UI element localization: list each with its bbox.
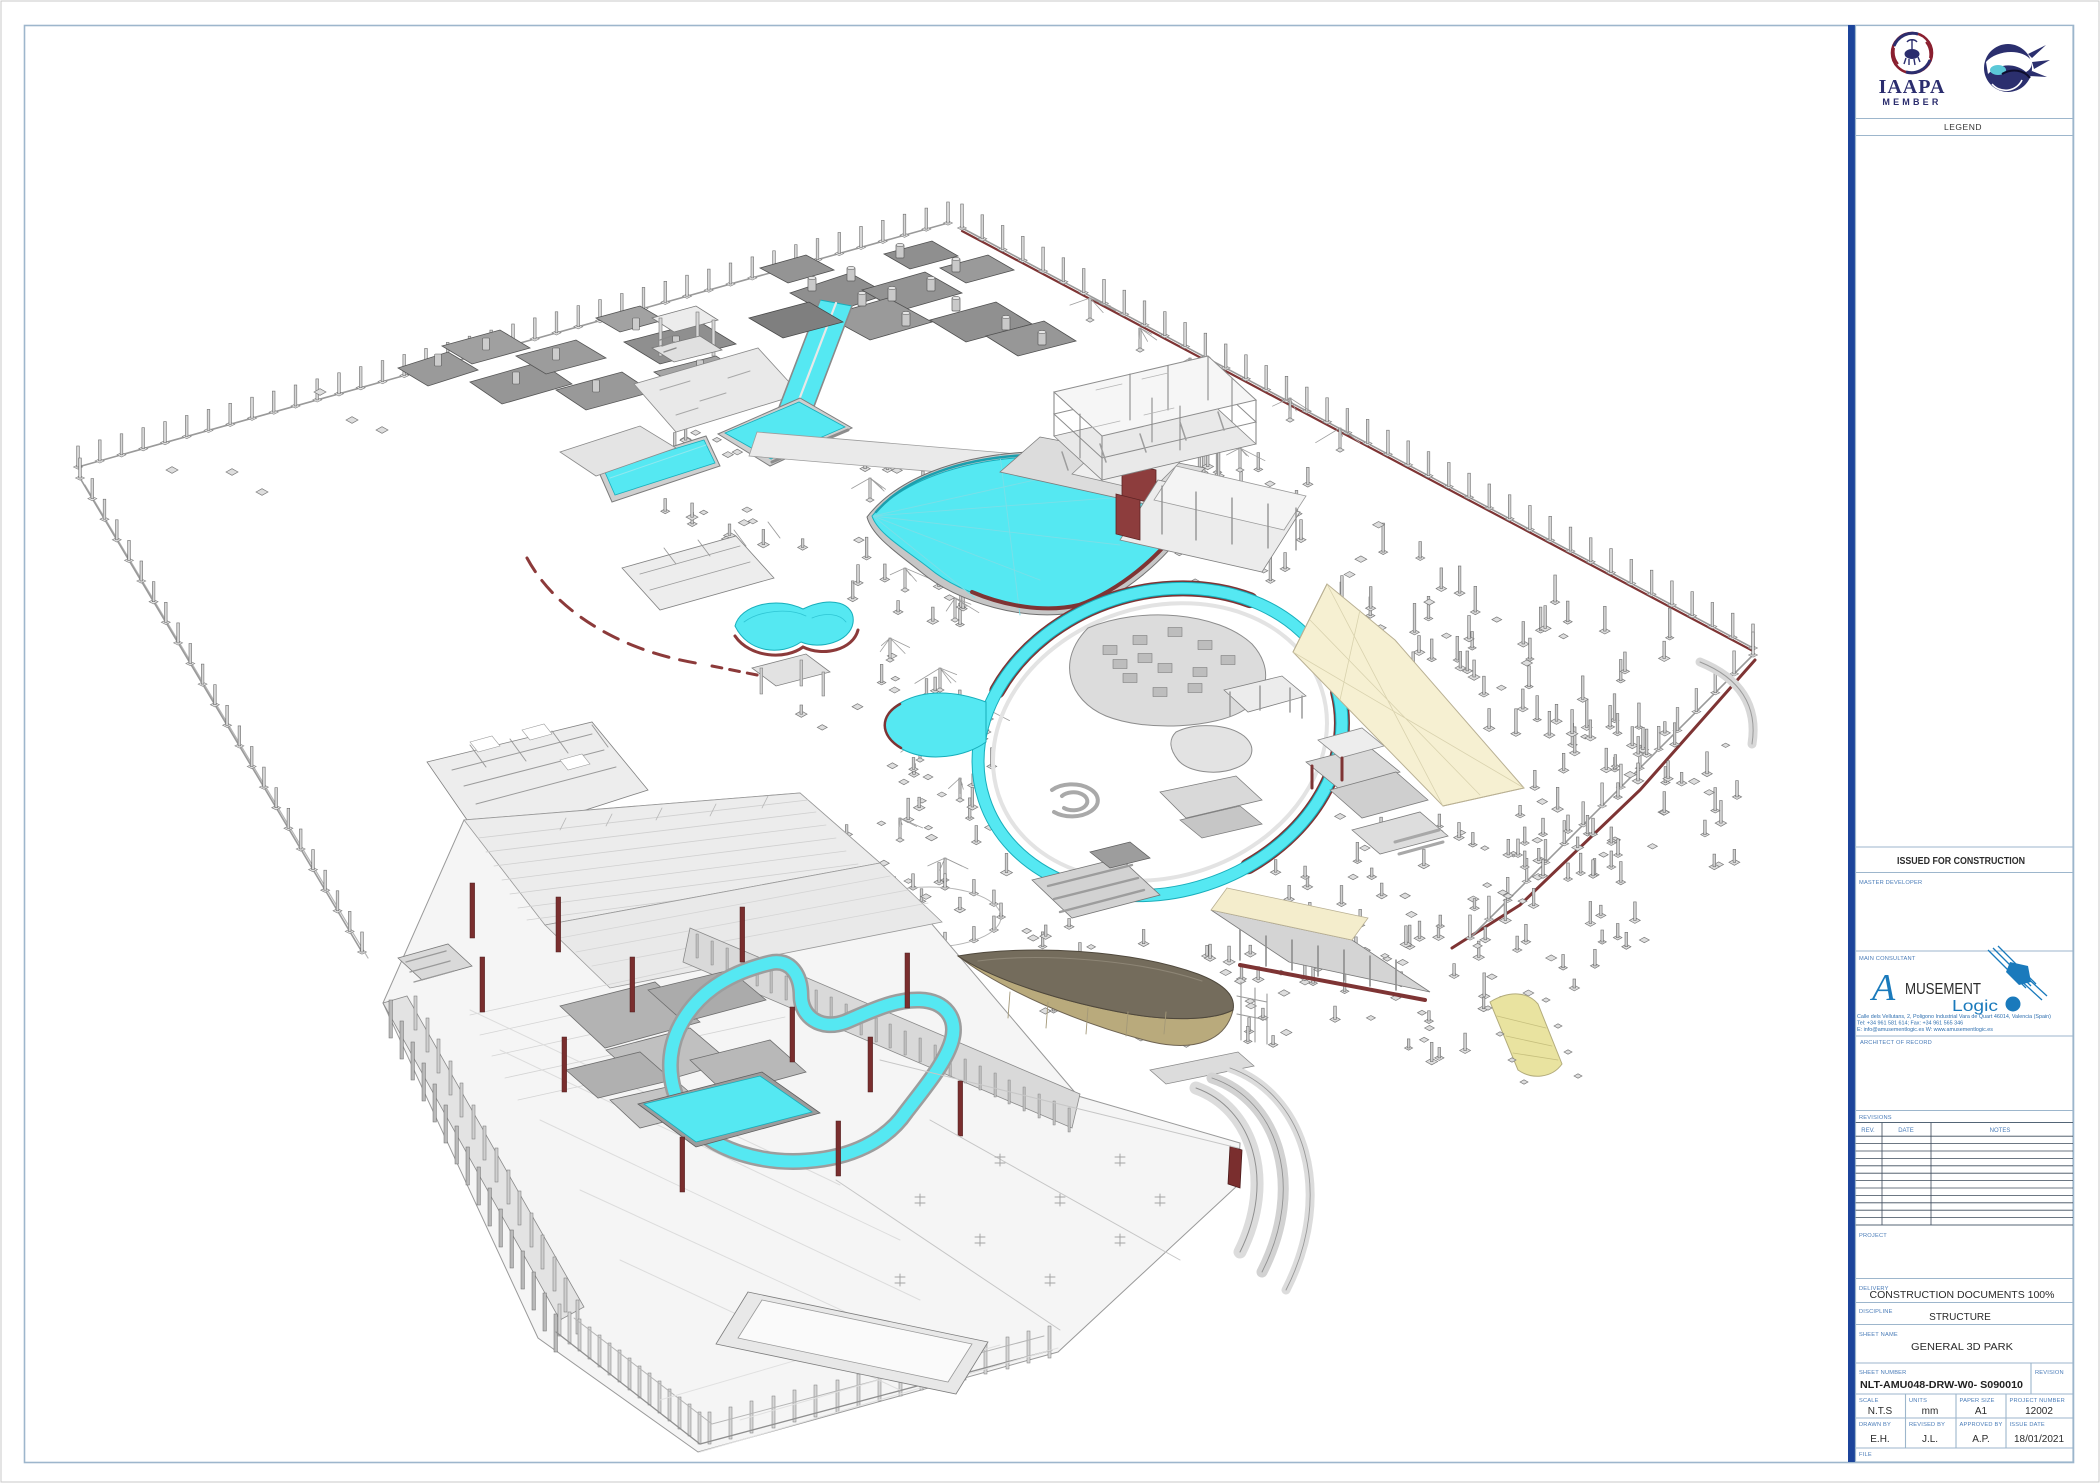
svg-text:E.H.: E.H. xyxy=(1870,1434,1889,1445)
svg-text:REVISIONS: REVISIONS xyxy=(1859,1115,1892,1121)
svg-text:A.P.: A.P. xyxy=(1972,1434,1990,1445)
svg-text:ISSUED FOR CONSTRUCTION: ISSUED FOR CONSTRUCTION xyxy=(1897,856,2025,867)
svg-text:MAIN CONSULTANT: MAIN CONSULTANT xyxy=(1859,956,1916,962)
svg-text:SHEET NUMBER: SHEET NUMBER xyxy=(1859,1370,1907,1376)
svg-text:SCALE: SCALE xyxy=(1859,1398,1879,1404)
svg-text:Logic: Logic xyxy=(1952,998,1998,1015)
svg-text:UNITS: UNITS xyxy=(1909,1398,1927,1404)
svg-text:APPROVED BY: APPROVED BY xyxy=(1960,1422,2003,1428)
svg-text:Tel: +34 961 581 614; Fax: +34: Tel: +34 961 581 614; Fax: +34 961 565 3… xyxy=(1857,1021,1963,1027)
svg-text:MUSEMENT: MUSEMENT xyxy=(1905,981,1981,998)
svg-text:STRUCTURE: STRUCTURE xyxy=(1929,1312,1991,1323)
svg-text:CONSTRUCTION DOCUMENTS 100%: CONSTRUCTION DOCUMENTS 100% xyxy=(1870,1289,2055,1301)
svg-text:SHEET NAME: SHEET NAME xyxy=(1859,1332,1898,1338)
svg-text:MASTER DEVELOPER: MASTER DEVELOPER xyxy=(1859,880,1922,886)
svg-text:REV.: REV. xyxy=(1861,1128,1875,1134)
svg-text:DISCIPLINE: DISCIPLINE xyxy=(1859,1309,1893,1315)
svg-text:LEGEND: LEGEND xyxy=(1944,122,1982,132)
svg-text:FILE: FILE xyxy=(1859,1452,1872,1458)
svg-text:ISSUE DATE: ISSUE DATE xyxy=(2010,1422,2045,1428)
svg-text:NLT-AMU048-DRW-W0- S090010: NLT-AMU048-DRW-W0- S090010 xyxy=(1860,1379,2023,1391)
svg-text:A1: A1 xyxy=(1975,1406,1988,1417)
svg-text:mm: mm xyxy=(1922,1406,1939,1417)
svg-text:A: A xyxy=(1869,967,1896,1009)
svg-text:IAAPA: IAAPA xyxy=(1879,76,1946,98)
svg-text:PROJECT: PROJECT xyxy=(1859,1233,1887,1239)
svg-text:DATE: DATE xyxy=(1898,1128,1914,1134)
svg-text:PROJECT NUMBER: PROJECT NUMBER xyxy=(2010,1398,2065,1404)
svg-text:NOTES: NOTES xyxy=(1990,1128,2011,1134)
svg-text:REVISED BY: REVISED BY xyxy=(1909,1422,1945,1428)
svg-text:ARCHITECT OF RECORD: ARCHITECT OF RECORD xyxy=(1860,1040,1932,1046)
svg-text:MEMBER: MEMBER xyxy=(1882,97,1941,107)
svg-text:Calle dels Vellutans, 2, Polig: Calle dels Vellutans, 2, Poligono Indust… xyxy=(1857,1014,2051,1020)
svg-text:PAPER SIZE: PAPER SIZE xyxy=(1960,1398,1995,1404)
svg-text:DRAWN BY: DRAWN BY xyxy=(1859,1422,1891,1428)
svg-text:J.L.: J.L. xyxy=(1922,1434,1938,1445)
svg-text:GENERAL 3D PARK: GENERAL 3D PARK xyxy=(1911,1341,2013,1353)
svg-text:REVISION: REVISION xyxy=(2035,1370,2064,1376)
svg-text:N.T.S: N.T.S xyxy=(1868,1406,1893,1417)
svg-text:12002: 12002 xyxy=(2025,1406,2053,1417)
svg-text:18/01/2021: 18/01/2021 xyxy=(2014,1434,2064,1445)
svg-text:E: info@amusementlogic.es W: w: E: info@amusementlogic.es W: www.amuseme… xyxy=(1857,1027,1993,1033)
